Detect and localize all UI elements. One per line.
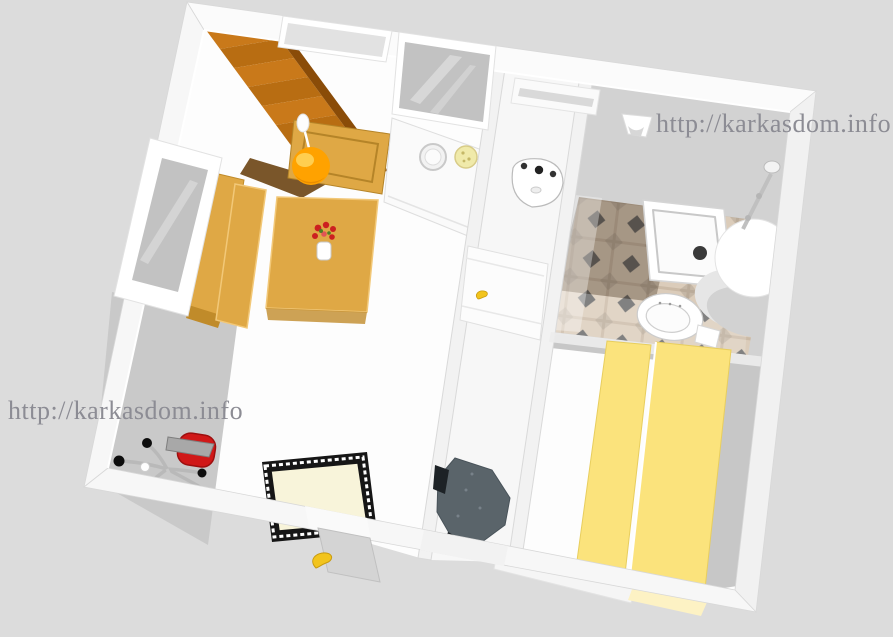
watermark-top-right: http://karkasdom.info <box>656 109 891 139</box>
wash-basin <box>512 159 563 207</box>
chair-wheel <box>114 456 125 467</box>
shower-drain <box>693 246 707 260</box>
floorplan-3d-render: http://karkasdom.info http://karkasdom.i… <box>0 0 893 637</box>
faucet-handle-left <box>521 163 527 169</box>
scene-canvas <box>0 0 893 637</box>
watermark-bottom-left: http://karkasdom.info <box>8 396 243 426</box>
chair-wheel <box>198 469 207 478</box>
shower-head <box>764 161 780 173</box>
faucet-spout <box>535 166 543 174</box>
lamp-shade <box>292 147 330 185</box>
faucet-handle-right <box>550 171 556 177</box>
chair-wheel <box>142 438 152 448</box>
cooking-pot <box>455 146 477 168</box>
window-top-center <box>392 32 496 130</box>
